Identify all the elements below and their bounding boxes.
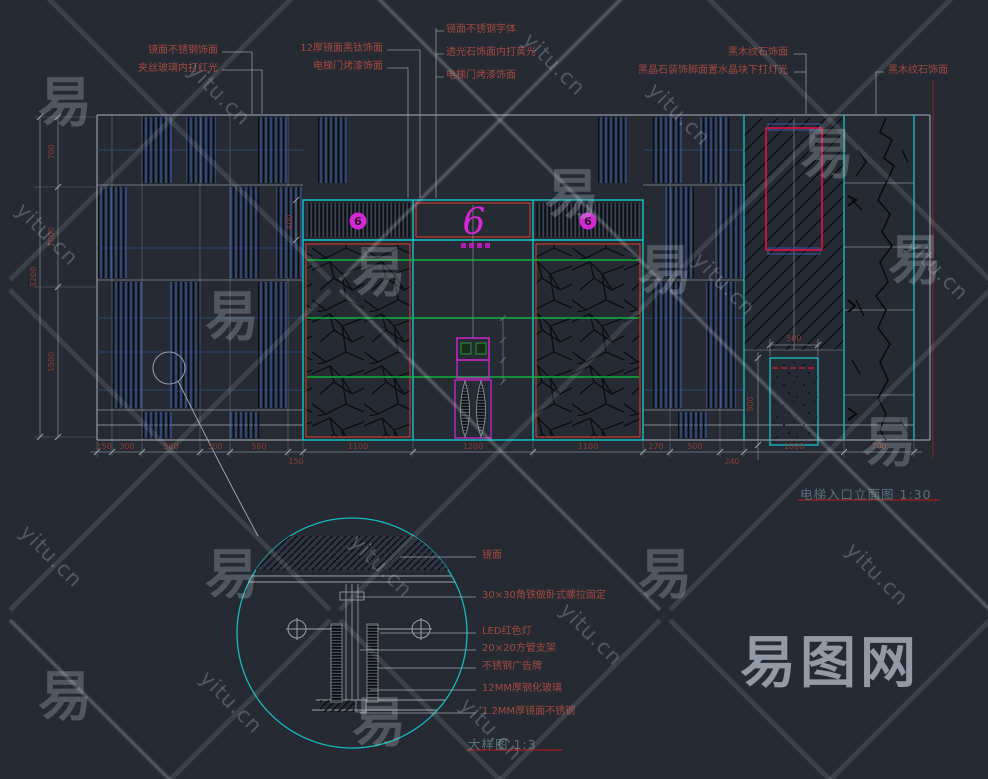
note-lit-stone: 透光石饰面内打黄光	[446, 48, 536, 58]
svg-text:300: 300	[207, 442, 222, 451]
note-door-paint: 电梯门烤漆饰面	[446, 71, 516, 81]
svg-text:1000: 1000	[47, 227, 56, 247]
detail-note-mirror: 镜面	[482, 551, 502, 561]
right-wall-panels	[643, 115, 744, 440]
svg-text:500: 500	[687, 442, 702, 451]
call-button-panel	[457, 338, 489, 378]
bolt-symbols	[286, 618, 432, 640]
note-steel-letters: 镜面不锈钢字体	[446, 25, 516, 35]
note-black-wood-stone-right: 黑木纹石饰面	[888, 66, 948, 76]
door-pulls	[455, 380, 491, 438]
svg-text:300: 300	[119, 442, 134, 451]
detail-note-led: LED红色灯	[482, 627, 532, 637]
svg-text:580: 580	[251, 442, 266, 451]
note-black-wood-stone: 黑木纹石饰面	[640, 48, 788, 58]
svg-text:580: 580	[163, 442, 178, 451]
note-black-titanium: 12厚镜面黑钛饰面	[233, 44, 383, 54]
door-panel-right	[536, 244, 640, 437]
svg-text:400: 400	[285, 214, 294, 229]
site-logo: 易图网	[740, 618, 920, 699]
svg-text:150: 150	[96, 442, 111, 451]
detail-note-ad-board: 不锈钢广告牌	[482, 662, 542, 672]
elevation-title: 电梯入口立面图 1:30	[800, 484, 932, 503]
glass-section	[331, 624, 342, 702]
svg-text:240: 240	[724, 457, 739, 466]
detail-note-angle-steel: 30×30角铁做卧式螺拉固定	[482, 591, 606, 601]
detail-note-square-tube: 20×20方管支架	[482, 644, 556, 654]
door-panel-left	[306, 244, 410, 437]
svg-text:700: 700	[47, 144, 56, 159]
svg-text:150: 150	[288, 457, 303, 466]
svg-text:1200: 1200	[463, 442, 483, 451]
svg-text:1000: 1000	[784, 442, 804, 451]
niche-width-dim: 500	[786, 334, 801, 343]
svg-text:270: 270	[648, 442, 663, 451]
svg-text:1100: 1100	[348, 442, 368, 451]
disc-numeral-left: 6	[354, 215, 362, 228]
disc-numeral-right: 6	[584, 215, 592, 228]
note-wired-glass: 夹丝玻璃内打红光	[48, 64, 218, 74]
detail-note-glass: 12MM厚钢化玻璃	[482, 684, 562, 694]
detail-drawing	[237, 518, 476, 748]
niche-height-dim: 900	[746, 396, 755, 411]
svg-text:700: 700	[871, 442, 886, 451]
note-crystal-skirting: 黑晶石装饰脚面置水晶块下打灯光	[596, 66, 788, 76]
elevator-logo-numeral: 6	[463, 202, 486, 243]
note-mirror-steel: 镜面不锈钢饰面	[58, 46, 218, 56]
marble-vein	[876, 118, 894, 440]
detail-note-ss-sheet: 1.2MM厚镜面不锈钢	[482, 707, 575, 717]
cad-canvas: 150 300 580 300 580 150 1100 1200 1100 2…	[0, 0, 988, 779]
svg-text:1500: 1500	[47, 352, 56, 372]
note-door-paint-left: 电梯门烤漆饰面	[253, 62, 383, 72]
marble-column	[844, 115, 914, 440]
svg-text:3200: 3200	[29, 267, 38, 287]
detail-title: 大样图 1:3	[468, 734, 537, 753]
logo-subtext-marks	[461, 243, 490, 248]
svg-text:1100: 1100	[578, 442, 598, 451]
